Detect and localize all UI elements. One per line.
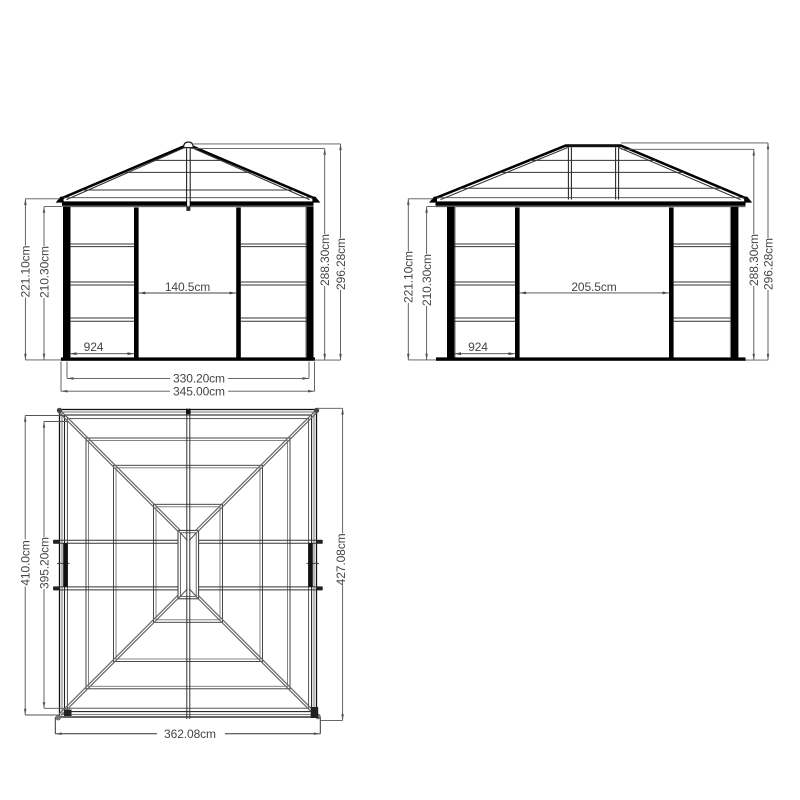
svg-text:288.30cm: 288.30cm: [318, 234, 332, 286]
svg-text:288.30cm: 288.30cm: [747, 234, 761, 286]
svg-text:395.20cm: 395.20cm: [37, 537, 51, 589]
svg-text:210.30cm: 210.30cm: [420, 254, 434, 306]
svg-text:221.10cm: 221.10cm: [19, 245, 33, 297]
svg-text:410.0cm: 410.0cm: [19, 540, 33, 585]
svg-text:345.00cm: 345.00cm: [173, 384, 225, 398]
svg-text:140.5cm: 140.5cm: [165, 280, 210, 294]
svg-text:362.08cm: 362.08cm: [164, 727, 216, 741]
svg-text:210.30cm: 210.30cm: [37, 246, 51, 298]
svg-text:296.28cm: 296.28cm: [761, 238, 775, 290]
svg-text:221.10cm: 221.10cm: [402, 251, 416, 303]
svg-text:924: 924: [468, 340, 488, 354]
svg-text:924: 924: [84, 340, 104, 354]
svg-text:296.28cm: 296.28cm: [334, 238, 348, 290]
svg-text:205.5cm: 205.5cm: [571, 280, 616, 294]
svg-text:427.08cm: 427.08cm: [334, 533, 348, 585]
